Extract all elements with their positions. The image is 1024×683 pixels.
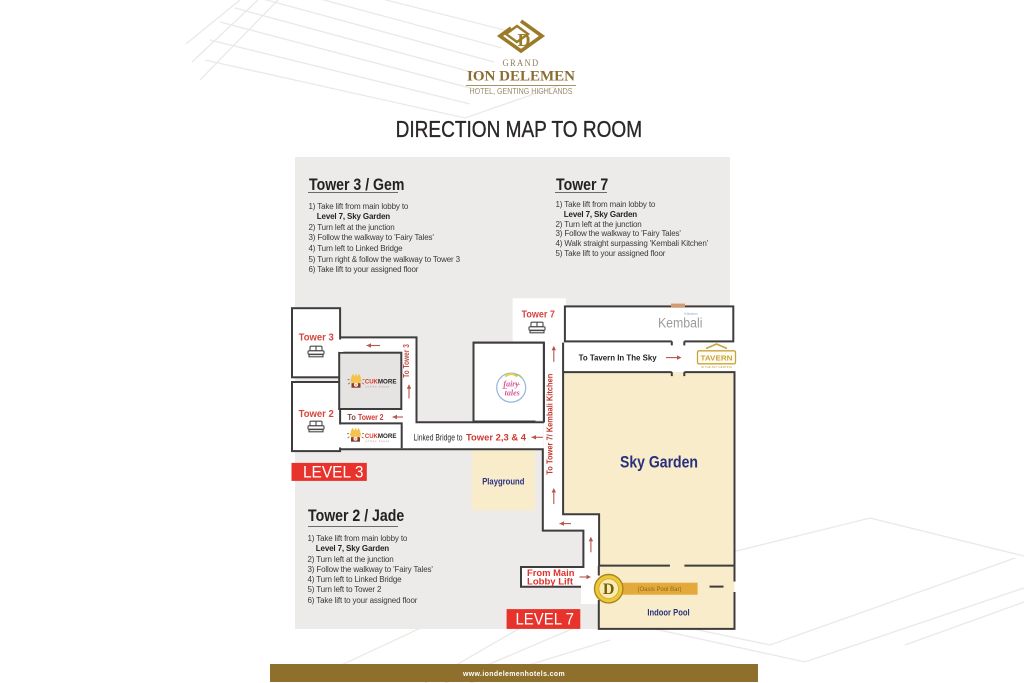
svg-text:To: To [347, 413, 356, 422]
svg-text:D: D [518, 30, 531, 50]
svg-text:MORE: MORE [378, 379, 397, 386]
svg-text:www.iondelemenhotels.com: www.iondelemenhotels.com [462, 669, 565, 678]
svg-text:D: D [603, 581, 615, 598]
svg-text:LEVEL 7: LEVEL 7 [515, 611, 574, 629]
svg-text:Tower 3: Tower 3 [299, 332, 334, 344]
svg-text:HOTEL, GENTING HIGHLANDS: HOTEL, GENTING HIGHLANDS [470, 87, 573, 96]
svg-text:coffee house: coffee house [366, 385, 390, 389]
svg-text:Kitchen: Kitchen [684, 311, 697, 316]
svg-text:CUK: CUK [365, 433, 378, 440]
svg-text:Kembali: Kembali [658, 316, 703, 331]
svg-text:IN THE SKY GENTING: IN THE SKY GENTING [701, 365, 733, 369]
svg-text:(Oasis Pool Bar): (Oasis Pool Bar) [637, 587, 681, 593]
svg-text:Sky Garden: Sky Garden [620, 453, 698, 472]
svg-text:Tower 7: Tower 7 [522, 308, 555, 320]
svg-text:ION DELEMEN: ION DELEMEN [467, 69, 576, 85]
svg-text:To Tower 7/ Kembali Kitchen: To Tower 7/ Kembali Kitchen [544, 374, 554, 475]
svg-text:LEVEL 3: LEVEL 3 [303, 463, 364, 481]
svg-text:DIRECTION MAP TO ROOM: DIRECTION MAP TO ROOM [396, 116, 642, 142]
svg-text:CUK: CUK [365, 379, 378, 386]
svg-text:To Tavern In The Sky: To Tavern In The Sky [579, 353, 657, 363]
svg-text:coffee house: coffee house [366, 439, 390, 443]
svg-text:Tower 2: Tower 2 [358, 413, 384, 422]
svg-text:TAVERN: TAVERN [701, 353, 733, 362]
svg-text:MORE: MORE [378, 433, 397, 440]
svg-text:Tower 2,3 & 4: Tower 2,3 & 4 [466, 432, 526, 442]
svg-text:Indoor Pool: Indoor Pool [647, 608, 689, 619]
svg-text:tales: tales [505, 389, 520, 398]
svg-text:fairy: fairy [503, 380, 519, 389]
svg-text:Playground: Playground [482, 476, 524, 486]
svg-text:GRAND: GRAND [503, 59, 540, 69]
svg-text:To Tower 3: To Tower 3 [402, 344, 411, 378]
svg-text:Lobby Lift: Lobby Lift [527, 575, 573, 586]
svg-text:Linked Bridge to: Linked Bridge to [414, 432, 463, 442]
svg-text:Tower 2: Tower 2 [299, 408, 334, 420]
